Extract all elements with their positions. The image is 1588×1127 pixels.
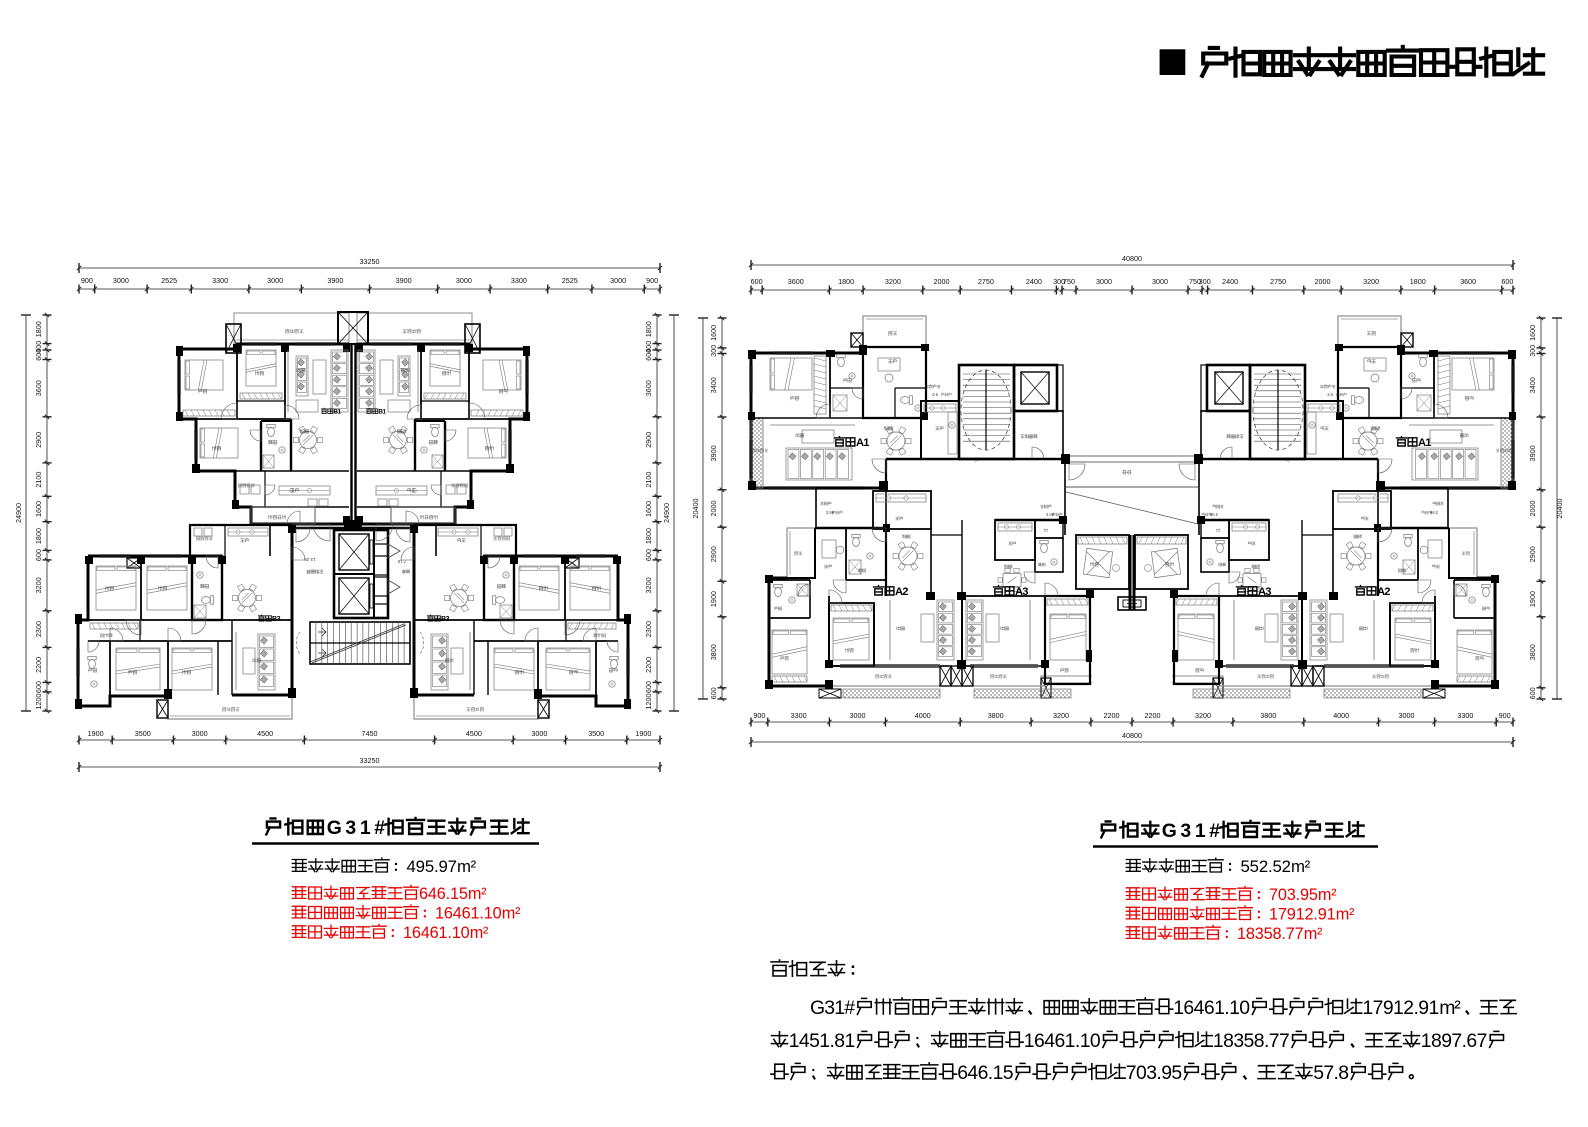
- svg-text:2000: 2000: [709, 501, 718, 517]
- svg-text:G31#: G31#: [1162, 820, 1221, 842]
- svg-text:1451.81: 1451.81: [789, 1030, 856, 1052]
- svg-text:B3: B3: [441, 615, 450, 623]
- svg-text:2750: 2750: [978, 277, 994, 286]
- svg-text:2525: 2525: [161, 276, 177, 285]
- svg-text:600: 600: [34, 549, 43, 561]
- svg-text:1800: 1800: [34, 321, 43, 337]
- svg-text:495.97: 495.97: [407, 857, 458, 876]
- svg-text:600: 600: [644, 549, 653, 561]
- svg-text:300: 300: [709, 345, 718, 357]
- svg-text:m²: m²: [457, 857, 477, 876]
- svg-text:24900: 24900: [14, 503, 23, 523]
- svg-text:3200: 3200: [34, 577, 43, 593]
- svg-text:33250: 33250: [360, 257, 380, 266]
- svg-text:2400: 2400: [1026, 277, 1042, 286]
- svg-text:4500: 4500: [466, 729, 482, 738]
- svg-text:1600: 1600: [709, 325, 718, 341]
- svg-text:300: 300: [1199, 277, 1211, 286]
- svg-text:1800: 1800: [1410, 277, 1426, 286]
- svg-text:3400: 3400: [709, 377, 718, 393]
- svg-text:3600: 3600: [34, 380, 43, 396]
- svg-text:3600: 3600: [788, 277, 804, 286]
- svg-text:900: 900: [646, 276, 658, 285]
- svg-text:3200: 3200: [644, 577, 653, 593]
- svg-text:3.96: 3.96: [826, 510, 835, 515]
- svg-text:1897.67: 1897.67: [1421, 1030, 1488, 1052]
- svg-text:16461.10: 16461.10: [435, 905, 502, 923]
- svg-text:m²: m²: [1291, 857, 1311, 876]
- svg-text:600: 600: [34, 349, 43, 361]
- svg-text:3500: 3500: [588, 729, 604, 738]
- svg-text:3800: 3800: [1260, 711, 1276, 720]
- svg-text:A3: A3: [1015, 586, 1029, 598]
- svg-text:20400: 20400: [691, 499, 700, 519]
- svg-text:3400: 3400: [1528, 377, 1537, 393]
- svg-text:646.15: 646.15: [419, 885, 468, 903]
- svg-text:3300: 3300: [212, 276, 228, 285]
- svg-text:3800: 3800: [1528, 644, 1537, 660]
- svg-text:2000: 2000: [934, 277, 950, 286]
- svg-text:1200: 1200: [644, 694, 653, 710]
- svg-text:2200: 2200: [644, 657, 653, 673]
- svg-text:300: 300: [1528, 345, 1537, 357]
- svg-text:3000: 3000: [456, 276, 472, 285]
- svg-text:A1: A1: [856, 437, 870, 449]
- svg-text:3000: 3000: [531, 729, 547, 738]
- svg-text:3.6: 3.6: [932, 392, 938, 397]
- svg-text:1600: 1600: [34, 501, 43, 517]
- svg-text:1800: 1800: [644, 528, 653, 544]
- svg-text:m²: m²: [1336, 906, 1355, 924]
- svg-text:600: 600: [1528, 687, 1537, 699]
- svg-text:2900: 2900: [34, 432, 43, 448]
- svg-text:m²: m²: [1439, 997, 1461, 1019]
- svg-text:1800: 1800: [34, 528, 43, 544]
- svg-text:40800: 40800: [1122, 731, 1142, 740]
- svg-text:2100: 2100: [34, 472, 43, 488]
- svg-text:2100: 2100: [644, 472, 653, 488]
- svg-text:1800: 1800: [644, 321, 653, 337]
- svg-text:17912.91: 17912.91: [1269, 906, 1336, 924]
- svg-text:3.96: 3.96: [1429, 510, 1438, 515]
- svg-text:m²: m²: [502, 905, 521, 923]
- svg-text:4500: 4500: [257, 729, 273, 738]
- svg-text:m²: m²: [1304, 925, 1323, 943]
- svg-text:24900: 24900: [662, 503, 671, 523]
- svg-text:703.95: 703.95: [1269, 886, 1318, 904]
- svg-text:600: 600: [1501, 277, 1513, 286]
- svg-text:A2: A2: [895, 586, 909, 598]
- svg-text:G31#: G31#: [327, 817, 386, 839]
- svg-text:18358.77: 18358.77: [1237, 925, 1304, 943]
- svg-text:703.95: 703.95: [1126, 1062, 1182, 1084]
- svg-text:3900: 3900: [327, 276, 343, 285]
- svg-text:600: 600: [644, 681, 653, 693]
- svg-text:17912.91: 17912.91: [1362, 997, 1439, 1019]
- svg-text:57.8: 57.8: [1313, 1062, 1349, 1084]
- svg-text:16461.10: 16461.10: [403, 924, 470, 942]
- svg-text:3600: 3600: [1460, 277, 1476, 286]
- svg-text:3.96: 3.96: [1046, 512, 1055, 517]
- svg-text:2400: 2400: [1222, 277, 1238, 286]
- svg-text:1900: 1900: [88, 729, 104, 738]
- svg-text:2000: 2000: [1528, 501, 1537, 517]
- svg-text:3200: 3200: [1053, 711, 1069, 720]
- svg-text:900: 900: [753, 711, 765, 720]
- svg-text:600: 600: [34, 681, 43, 693]
- svg-text:3300: 3300: [511, 276, 527, 285]
- svg-text:1900: 1900: [1528, 591, 1537, 607]
- svg-text:20400: 20400: [1555, 499, 1564, 519]
- svg-text:1900: 1900: [709, 591, 718, 607]
- svg-text:3200: 3200: [1195, 711, 1211, 720]
- svg-text:3800: 3800: [988, 711, 1004, 720]
- svg-text:900: 900: [1499, 711, 1511, 720]
- svg-text:m²: m²: [1318, 886, 1337, 904]
- svg-text:3000: 3000: [1399, 711, 1415, 720]
- svg-text:3200: 3200: [885, 277, 901, 286]
- svg-text:600: 600: [709, 687, 718, 699]
- svg-text:2525: 2525: [562, 276, 578, 285]
- svg-text:2750: 2750: [1270, 277, 1286, 286]
- svg-text:3000: 3000: [192, 729, 208, 738]
- svg-text:1800: 1800: [838, 277, 854, 286]
- svg-text:7450: 7450: [362, 729, 378, 738]
- svg-text:B3: B3: [272, 615, 281, 623]
- svg-text:3300: 3300: [1457, 711, 1473, 720]
- svg-text:18358.77: 18358.77: [1213, 1030, 1290, 1052]
- svg-text:2200: 2200: [34, 657, 43, 673]
- svg-text:3000: 3000: [610, 276, 626, 285]
- svg-text:3000: 3000: [113, 276, 129, 285]
- svg-text:2900: 2900: [1528, 546, 1537, 562]
- svg-text:B1: B1: [333, 409, 341, 416]
- svg-text:3300: 3300: [791, 711, 807, 720]
- svg-text:2200: 2200: [1145, 711, 1161, 720]
- svg-text:3.96: 3.96: [1209, 512, 1218, 517]
- svg-text:13.25: 13.25: [304, 557, 316, 562]
- svg-text:33250: 33250: [360, 756, 380, 765]
- svg-text:4000: 4000: [1333, 711, 1349, 720]
- svg-text:2300: 2300: [34, 621, 43, 637]
- svg-text:m²: m²: [470, 924, 489, 942]
- svg-text:3600: 3600: [644, 380, 653, 396]
- svg-text:3800: 3800: [709, 644, 718, 660]
- svg-text:3.6: 3.6: [1327, 392, 1333, 397]
- svg-text:40800: 40800: [1122, 254, 1142, 263]
- svg-text:3500: 3500: [135, 729, 151, 738]
- svg-text:2000: 2000: [1315, 277, 1331, 286]
- svg-text:2200: 2200: [1104, 711, 1120, 720]
- svg-text:600: 600: [751, 277, 763, 286]
- svg-text:2300: 2300: [644, 621, 653, 637]
- svg-text:750: 750: [1063, 277, 1075, 286]
- svg-text:3000: 3000: [1152, 277, 1168, 286]
- svg-text:3000: 3000: [850, 711, 866, 720]
- svg-text:1200: 1200: [34, 694, 43, 710]
- svg-text:B1: B1: [378, 409, 386, 416]
- svg-text:m²: m²: [468, 885, 487, 903]
- svg-text:16461.10: 16461.10: [1024, 1030, 1101, 1052]
- svg-text:4000: 4000: [915, 711, 931, 720]
- svg-text:A2: A2: [1377, 586, 1391, 598]
- svg-text:3000: 3000: [267, 276, 283, 285]
- svg-text:600: 600: [644, 349, 653, 361]
- svg-text:G31#: G31#: [810, 997, 855, 1019]
- svg-text:900: 900: [81, 276, 93, 285]
- svg-text:2900: 2900: [709, 546, 718, 562]
- svg-text:A3: A3: [1258, 586, 1272, 598]
- svg-text:1600: 1600: [644, 501, 653, 517]
- svg-text:3900: 3900: [709, 445, 718, 461]
- svg-text:A1: A1: [1418, 437, 1432, 449]
- svg-text:1600: 1600: [1528, 325, 1537, 341]
- svg-text:1900: 1900: [635, 729, 651, 738]
- svg-text:3900: 3900: [396, 276, 412, 285]
- svg-text:646.15: 646.15: [957, 1062, 1013, 1084]
- svg-text:552.52: 552.52: [1241, 857, 1292, 876]
- svg-text:3200: 3200: [1363, 277, 1379, 286]
- svg-text:3000: 3000: [1096, 277, 1112, 286]
- svg-text:16461.10: 16461.10: [1173, 997, 1250, 1019]
- svg-text:2900: 2900: [644, 432, 653, 448]
- svg-text:3900: 3900: [1528, 445, 1537, 461]
